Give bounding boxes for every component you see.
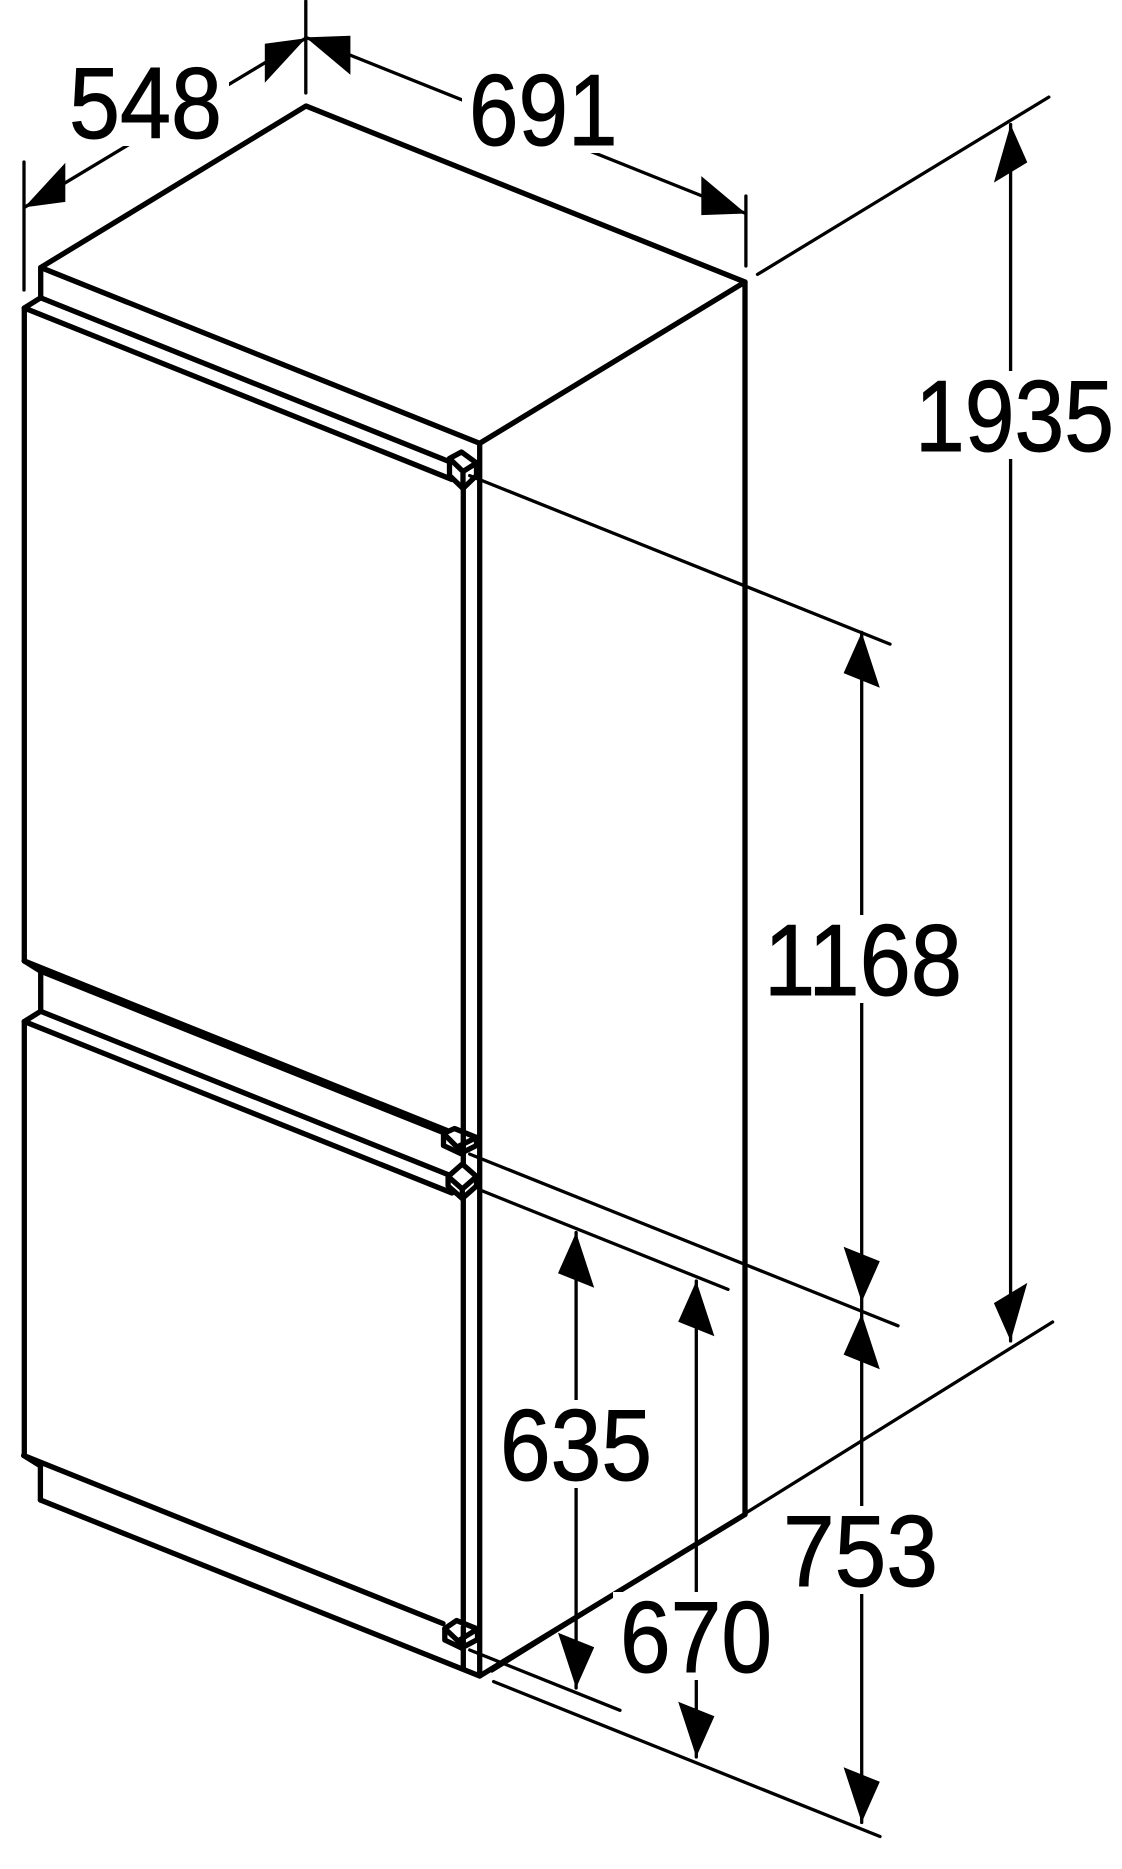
svg-text:691: 691 — [469, 53, 618, 167]
svg-text:635: 635 — [500, 1388, 652, 1502]
svg-text:670: 670 — [620, 1580, 772, 1694]
svg-text:1168: 1168 — [764, 903, 962, 1017]
svg-text:548: 548 — [69, 46, 222, 160]
svg-text:1935: 1935 — [915, 359, 1114, 473]
svg-text:753: 753 — [783, 1494, 938, 1608]
